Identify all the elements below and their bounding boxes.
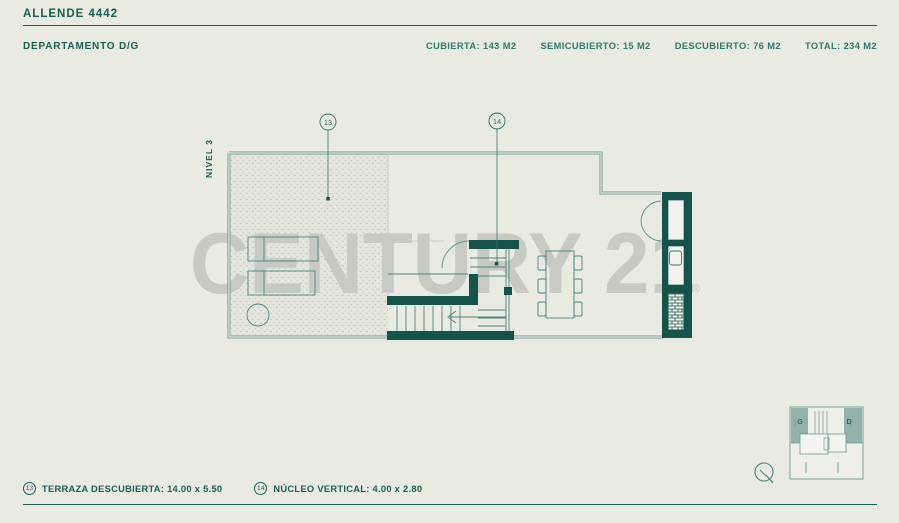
core-divider-wall-2 (662, 285, 692, 293)
legend-item-nucleo: 14 NÚCLEO VERTICAL: 4.00 x 2.80 (254, 482, 422, 495)
header-rule (23, 25, 877, 26)
unit-header-row: DEPARTAMENTO D/G CUBIERTA:143 M2 SEMICUB… (23, 41, 877, 52)
legend-text: TERRAZA DESCUBIERTA: 14.00 x 5.50 (42, 484, 222, 494)
stair-top-wall (469, 240, 519, 249)
floor-plan-drawing: CENTURY 21 ® (0, 0, 899, 523)
elevator-shaft-hatch (668, 293, 684, 330)
keyplan-label-g: G (797, 419, 803, 426)
callout-13-number: 13 (324, 118, 332, 127)
core-left-wall (662, 200, 668, 338)
legend-circled-number: 13 (23, 482, 36, 495)
core-right-wall (684, 192, 692, 338)
legend-item-terraza: 13 TERRAZA DESCUBIERTA: 14.00 x 5.50 (23, 482, 222, 495)
callout-14-endpoint (495, 262, 499, 266)
stair-newel-block (504, 287, 512, 295)
legend: 13 TERRAZA DESCUBIERTA: 14.00 x 5.50 14 … (23, 482, 422, 495)
toilet-fixture (670, 251, 682, 265)
stat-value: 15 M2 (623, 41, 651, 51)
area-stats: CUBIERTA:143 M2 SEMICUBIERTO:15 M2 DESCU… (426, 41, 877, 51)
keyplan-label-d: D (846, 419, 851, 426)
unit-title: DEPARTAMENTO D/G (23, 41, 139, 52)
keyplan-core-box-2 (828, 434, 846, 452)
core-bottom-wall (662, 330, 692, 338)
stat-label: DESCUBIERTO: (675, 41, 750, 51)
callout-13-endpoint (326, 197, 330, 201)
stat-total: TOTAL:234 M2 (805, 41, 877, 51)
legend-text: NÚCLEO VERTICAL: 4.00 x 2.80 (273, 484, 422, 494)
stat-label: CUBIERTA: (426, 41, 480, 51)
legend-circled-number: 14 (254, 482, 267, 495)
stat-descubierto: DESCUBIERTO:76 M2 (675, 41, 781, 51)
callout-14-number: 14 (493, 117, 501, 126)
stat-label: TOTAL: (805, 41, 841, 51)
stat-label: SEMICUBIERTO: (540, 41, 619, 51)
stat-value: 143 M2 (483, 41, 516, 51)
registered-trademark-icon: ® (692, 283, 700, 295)
stat-value: 234 M2 (844, 41, 877, 51)
stair-bottom-wall (387, 331, 514, 340)
level-label: NIVEL 3 (204, 139, 214, 178)
north-arrow-icon (755, 463, 773, 483)
core-room-upper (668, 200, 684, 240)
stat-cubierta: CUBIERTA:143 M2 (426, 41, 516, 51)
key-plan: G D (790, 407, 863, 479)
core-divider-wall-1 (662, 240, 692, 246)
project-title: ALLENDE 4442 (23, 8, 118, 20)
stat-semicubierto: SEMICUBIERTO:15 M2 (540, 41, 650, 51)
footer-rule (23, 504, 877, 505)
stat-value: 76 M2 (753, 41, 781, 51)
